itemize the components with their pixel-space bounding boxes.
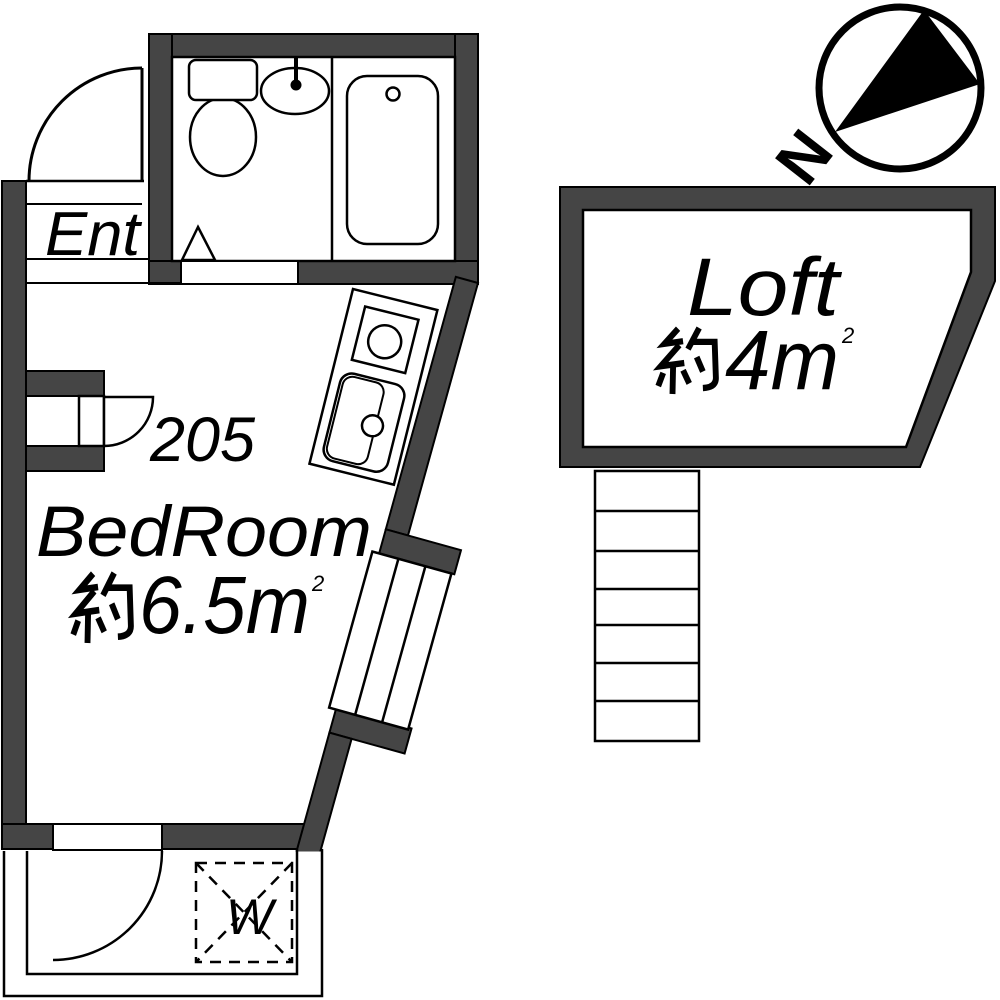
svg-text:W: W: [226, 889, 278, 945]
svg-text:2: 2: [311, 571, 324, 596]
svg-text:2: 2: [841, 323, 854, 348]
svg-text:6.5m: 6.5m: [139, 560, 310, 651]
svg-text:4m: 4m: [725, 313, 839, 407]
svg-text:Ent: Ent: [45, 200, 143, 269]
svg-text:205: 205: [149, 405, 256, 475]
